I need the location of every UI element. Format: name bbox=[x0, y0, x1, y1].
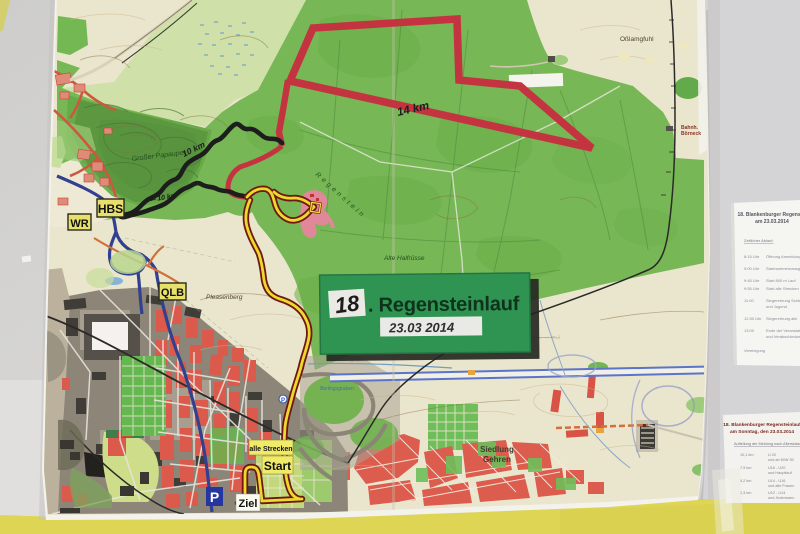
svg-text:8:15 Uhr: 8:15 Uhr bbox=[744, 254, 760, 259]
svg-text:alle Strecken: alle Strecken bbox=[249, 446, 292, 453]
svg-text:Ziel: Ziel bbox=[239, 498, 258, 510]
svg-text:Oßlamgfuhl: Oßlamgfuhl bbox=[620, 36, 654, 43]
svg-text:Zeitlicher Ablauf:: Zeitlicher Ablauf: bbox=[744, 238, 774, 243]
svg-text:WR: WR bbox=[70, 218, 88, 230]
svg-text:12:30 Uhr: 12:30 Uhr bbox=[744, 316, 762, 321]
svg-text:Siedlung: Siedlung bbox=[480, 445, 514, 454]
svg-text:10,1 km: 10,1 km bbox=[740, 453, 754, 457]
svg-text:Aufteilung der Meldung nach Al: Aufteilung der Meldung nach Altersklasse… bbox=[734, 442, 800, 446]
svg-text:Vereinigung: Vereinigung bbox=[744, 348, 765, 353]
svg-text:18. Blankenburger Regenstei: 18. Blankenburger Regenstei bbox=[738, 212, 800, 218]
svg-text:Börneck: Börneck bbox=[681, 131, 701, 137]
svg-text:am Sonntag, den 23.03.2014: am Sonntag, den 23.03.2014 bbox=[730, 429, 794, 435]
svg-text:und ab M/W 30: und ab M/W 30 bbox=[768, 458, 794, 462]
svg-text:und Verabschiedung: und Verabschiedung bbox=[766, 334, 800, 339]
svg-text:und Jedermann: und Jedermann bbox=[768, 496, 794, 500]
svg-text:Ende der Veranstaltung: Ende der Veranstaltung bbox=[766, 328, 800, 333]
svg-text:QLB: QLB bbox=[161, 287, 184, 299]
svg-text:Siegerehrung alle: Siegerehrung alle bbox=[766, 316, 798, 321]
svg-text:Start alle Strecken: Start alle Strecken bbox=[766, 286, 799, 291]
svg-text:13:00: 13:00 bbox=[744, 328, 755, 333]
svg-text:9:45 Uhr: 9:45 Uhr bbox=[744, 278, 760, 283]
svg-text:23.03 2014: 23.03 2014 bbox=[388, 320, 455, 336]
svg-text:und alle Frauen: und alle Frauen bbox=[768, 484, 794, 488]
svg-text:und Jugend: und Jugend bbox=[766, 304, 787, 309]
svg-text:. Regensteinlauf: . Regensteinlauf bbox=[368, 293, 520, 317]
svg-text:P: P bbox=[210, 489, 219, 505]
svg-text:18. Blankenburger Regensteinla: 18. Blankenburger Regensteinlauf bbox=[723, 422, 800, 428]
svg-text:5,2 km: 5,2 km bbox=[740, 479, 751, 483]
svg-text:9:55 Uhr: 9:55 Uhr bbox=[744, 286, 760, 291]
svg-text:Pleasenberg: Pleasenberg bbox=[206, 294, 243, 301]
svg-text:Öffnung Anmeldung: Öffnung Anmeldung bbox=[766, 254, 800, 259]
svg-text:am 23.03.2014: am 23.03.2014 bbox=[755, 219, 789, 225]
svg-text:Siegerehrung Schüler: Siegerehrung Schüler bbox=[766, 298, 800, 303]
svg-text:Bertingsgraben: Bertingsgraben bbox=[320, 386, 354, 392]
svg-text:Startnummernausgabe: Startnummernausgabe bbox=[766, 266, 800, 271]
svg-text:11:00: 11:00 bbox=[744, 298, 754, 303]
svg-text:Gehren: Gehren bbox=[483, 455, 511, 464]
svg-text:9:00 Uhr: 9:00 Uhr bbox=[744, 266, 760, 271]
svg-text:Start: Start bbox=[264, 459, 291, 473]
svg-text:Start 800 m Lauf: Start 800 m Lauf bbox=[766, 278, 796, 283]
svg-text:U14 - U16: U14 - U16 bbox=[768, 479, 785, 483]
svg-text:7,9 km: 7,9 km bbox=[740, 466, 751, 470]
svg-text:U 20: U 20 bbox=[768, 453, 776, 457]
svg-text:P: P bbox=[281, 398, 285, 404]
svg-text:U12 - U14: U12 - U14 bbox=[768, 491, 785, 495]
svg-text:18: 18 bbox=[333, 290, 361, 318]
svg-text:und Hauptlauf: und Hauptlauf bbox=[768, 471, 793, 475]
svg-text:HBS: HBS bbox=[98, 202, 123, 216]
svg-text:Alte Halfrüsse: Alte Halfrüsse bbox=[383, 255, 425, 262]
svg-text:3,3 km: 3,3 km bbox=[740, 491, 751, 495]
svg-text:U16 - U20: U16 - U20 bbox=[768, 466, 785, 470]
